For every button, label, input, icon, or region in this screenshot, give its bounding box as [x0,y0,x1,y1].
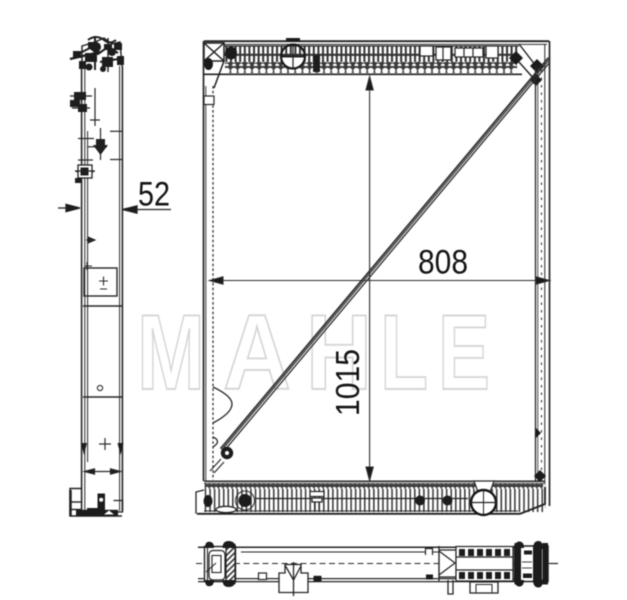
svg-text:E: E [438,292,490,412]
svg-text:1015: 1015 [330,349,367,416]
svg-text:M: M [137,292,205,412]
svg-text:52: 52 [138,176,170,214]
svg-text:L: L [380,292,428,412]
svg-text:A: A [223,292,291,412]
svg-text:808: 808 [418,244,468,282]
